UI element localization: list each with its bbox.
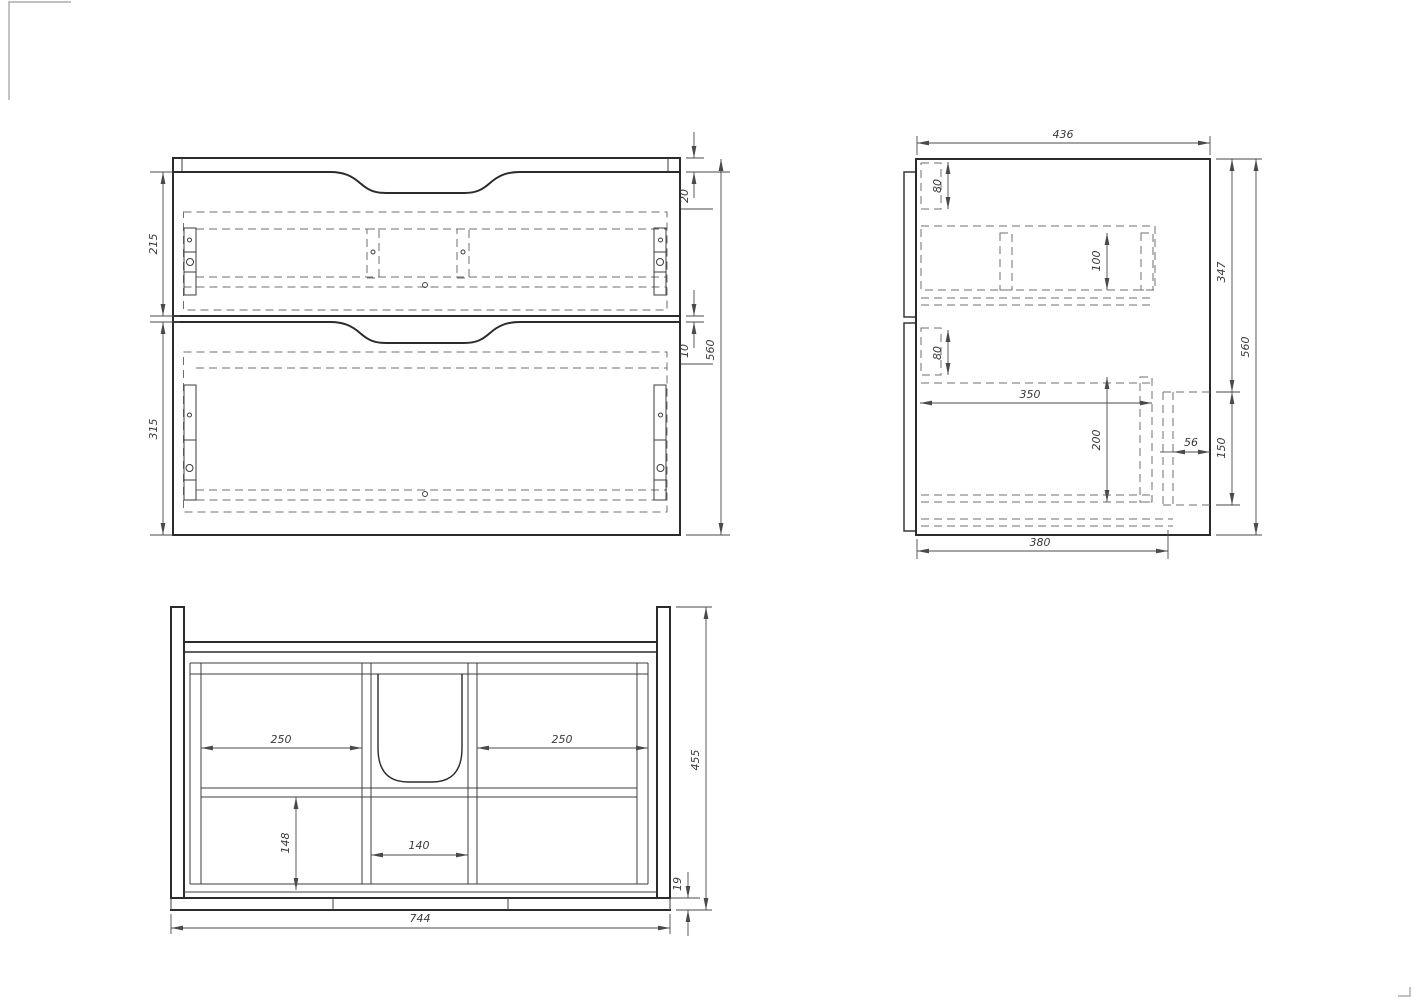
dim-side-slide-offset-upper: 80	[931, 162, 948, 209]
dim-label-744: 744	[410, 912, 431, 925]
dim-plan-overall-depth: 455	[676, 607, 712, 910]
frame-corner-marks	[9, 2, 1410, 996]
side-view-object-lines	[904, 159, 1210, 535]
front-drawer1-hidden-lines	[184, 212, 668, 310]
side-view-hidden-lines	[921, 163, 1210, 526]
dim-side-overall-height: 560	[1216, 159, 1262, 535]
dim-label-150: 150	[1215, 438, 1228, 459]
dim-front-drawer-top-height: 215	[147, 172, 180, 316]
dim-side-slide-span-lower: 350	[920, 388, 1152, 403]
dim-label-100: 100	[1090, 251, 1103, 272]
cabinet-technical-drawing: 215 315 20 10 560	[0, 0, 1412, 1000]
dim-plan-right-bay-width: 250	[477, 733, 648, 748]
front-view-object-lines	[173, 158, 680, 535]
dim-label-436: 436	[1053, 128, 1074, 141]
dim-front-top-overhang: 20	[678, 132, 730, 209]
dim-label-560-side: 560	[1239, 337, 1252, 358]
dim-plan-left-bay-width: 250	[201, 733, 362, 748]
dim-label-10: 10	[678, 344, 691, 358]
dim-label-215: 215	[147, 234, 160, 255]
front-drawer2-hidden-lines	[184, 352, 668, 512]
plan-view: 250 250 140 148 455 19	[171, 607, 712, 936]
dim-plan-bottom-rail-thickness: 19	[670, 872, 700, 936]
dim-label-350: 350	[1020, 388, 1041, 401]
dim-label-250-left: 250	[271, 733, 292, 746]
plan-view-object-lines	[171, 607, 670, 910]
dim-label-19: 19	[671, 877, 684, 891]
dim-label-80-upper: 80	[931, 179, 944, 193]
dim-label-56: 56	[1184, 436, 1198, 449]
dim-label-140: 140	[409, 839, 430, 852]
dim-label-315: 315	[147, 419, 160, 440]
dim-side-back-cutout-height: 150	[1215, 392, 1240, 505]
drawing-sheet: 215 315 20 10 560	[0, 0, 1412, 1000]
dim-label-250-right: 250	[552, 733, 573, 746]
dim-side-slide-offset-lower: 80	[931, 330, 948, 375]
dim-side-slide-width-upper: 100	[1090, 233, 1107, 290]
dim-side-slide-width-lower: 200	[1090, 377, 1107, 502]
dim-front-overall-height: 560	[686, 159, 730, 535]
dim-label-80-lower: 80	[931, 346, 944, 360]
dim-label-347: 347	[1215, 262, 1228, 283]
dim-front-drawer-bottom-height: 315	[147, 322, 180, 535]
dim-side-back-cutout-depth: 56	[1160, 436, 1210, 452]
dim-side-overall-depth: 436	[917, 128, 1210, 155]
dim-label-380: 380	[1030, 536, 1051, 549]
dim-plan-front-bay-depth: 148	[279, 797, 296, 890]
dim-plan-overall-width: 744	[171, 912, 670, 934]
dim-label-200: 200	[1090, 430, 1103, 451]
dim-label-148: 148	[279, 833, 292, 854]
dim-plan-center-bay-width: 140	[371, 839, 468, 855]
dim-label-455: 455	[689, 750, 702, 771]
dim-label-560-front: 560	[704, 340, 717, 361]
side-view: 436 80 100 80 350 200 56	[904, 128, 1262, 559]
dim-label-20: 20	[678, 189, 691, 203]
front-view: 215 315 20 10 560	[147, 132, 730, 535]
